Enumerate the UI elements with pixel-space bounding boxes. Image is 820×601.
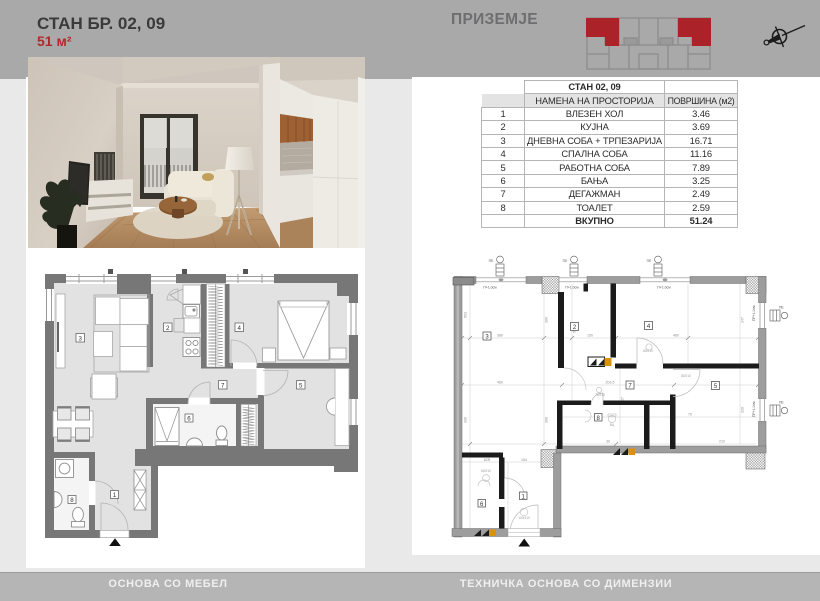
svg-text:П+1.0см: П+1.0см [565,286,579,290]
svg-text:ПЕ: ПЕ [779,401,784,405]
svg-text:330: 330 [464,417,468,423]
svg-text:ВЦ: ВЦ [610,423,615,427]
svg-text:380: 380 [497,334,503,338]
svg-text:ПР+1.0см: ПР+1.0см [752,305,756,321]
svg-text:60/210: 60/210 [481,469,491,473]
svg-text:70: 70 [688,413,692,417]
svg-text:7: 7 [221,382,225,389]
svg-text:ПЕ: ПЕ [779,306,784,310]
svg-text:80/210: 80/210 [643,349,653,353]
svg-text:6: 6 [187,416,191,423]
svg-text:62R: 62R [484,458,491,462]
svg-text:30: 30 [606,440,610,444]
svg-text:8: 8 [70,497,74,504]
svg-text:310: 310 [741,407,745,413]
svg-text:4: 4 [237,325,241,332]
svg-text:503: 503 [464,312,468,318]
svg-text:300: 300 [545,317,549,323]
svg-text:П+1.0см: П+1.0см [483,286,497,290]
svg-text:460: 460 [497,381,503,385]
svg-text:360: 360 [545,417,549,423]
svg-text:210: 210 [719,440,725,444]
svg-text:2: 2 [166,325,170,332]
svg-text:100/210: 100/210 [518,516,530,520]
svg-text:150: 150 [587,334,593,338]
svg-text:80/210: 80/210 [681,374,691,378]
svg-text:П+1.0см: П+1.0см [657,286,671,290]
svg-text:ПЕ: ПЕ [563,259,568,263]
svg-text:3: 3 [78,335,82,342]
svg-text:70/210: 70/210 [595,393,605,397]
svg-text:1: 1 [113,492,117,499]
svg-text:5: 5 [299,382,303,389]
svg-text:247: 247 [741,317,745,323]
svg-text:203.5: 203.5 [606,381,615,385]
svg-text:154: 154 [521,458,527,462]
svg-text:ПЕ: ПЕ [647,259,652,263]
svg-text:460: 460 [673,334,679,338]
svg-text:ПР+1.0см: ПР+1.0см [752,401,756,417]
svg-text:ПЕ: ПЕ [489,259,494,263]
